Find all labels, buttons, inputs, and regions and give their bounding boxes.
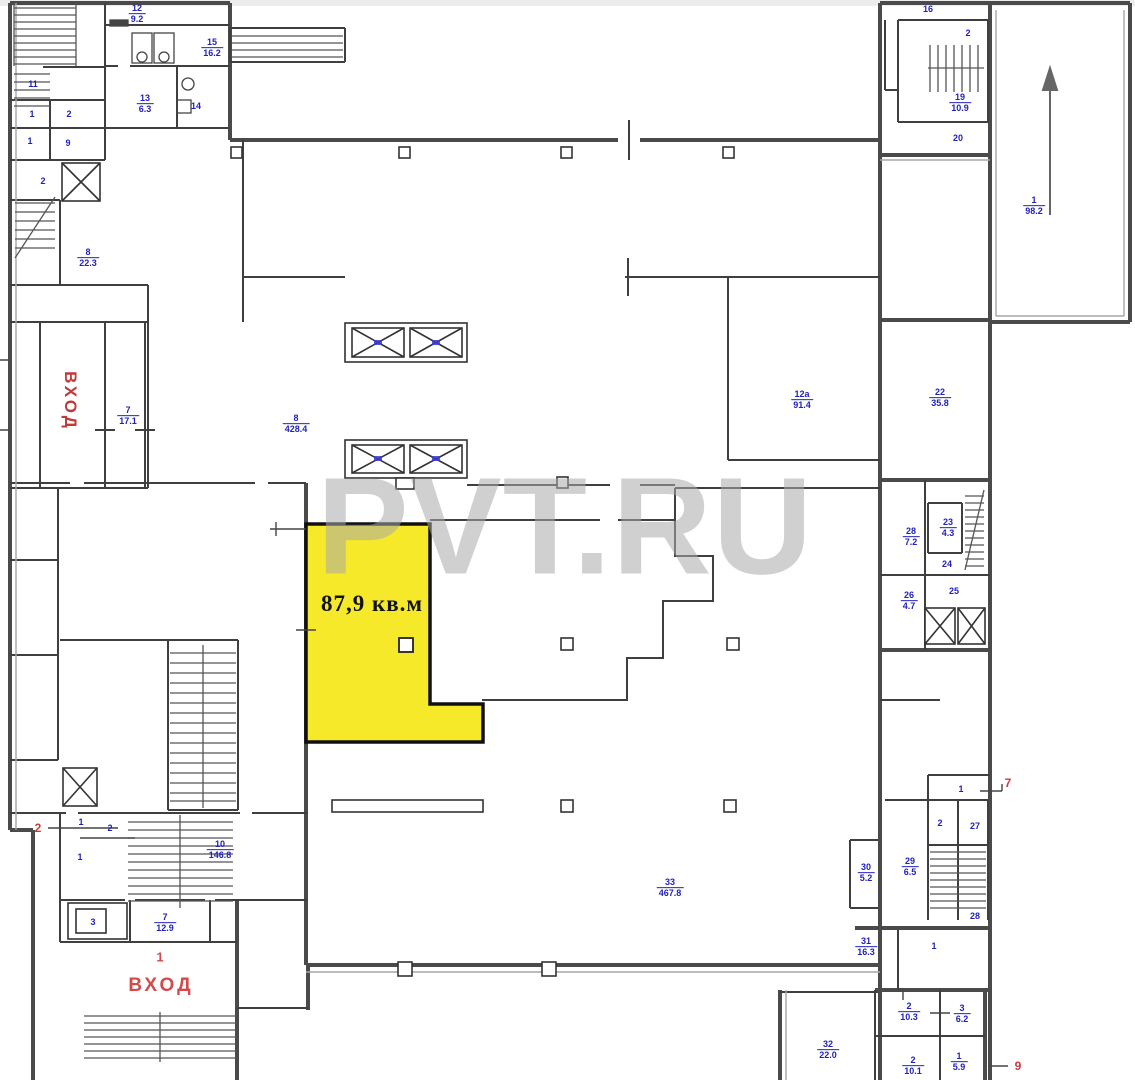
- room-label: 1: [75, 852, 84, 862]
- room-number: 28: [903, 526, 920, 536]
- room-label: 26 4.7: [901, 590, 918, 612]
- room-label: 13 6.3: [137, 93, 154, 115]
- room-area: 22.3: [77, 258, 99, 269]
- room-label: 7 17.1: [117, 405, 139, 427]
- room-area: 12.9: [154, 923, 176, 934]
- room-area: 9.2: [129, 14, 146, 25]
- room-area: 6.3: [137, 104, 154, 115]
- room-number: 2: [963, 28, 972, 38]
- room-number: 25: [947, 586, 961, 596]
- room-number: 8: [283, 413, 310, 423]
- room-label: 33 467.8: [657, 877, 684, 899]
- stairs: [14, 3, 986, 1062]
- room-label: 14: [189, 101, 203, 111]
- room-number: 10: [207, 839, 234, 849]
- room-label: 12а 91.4: [791, 389, 813, 411]
- room-area: 5.2: [858, 873, 875, 884]
- room-label: 2 10.1: [902, 1055, 924, 1077]
- room-number: 29: [902, 856, 919, 866]
- room-number: 11: [26, 79, 40, 89]
- room-number: 13: [137, 93, 154, 103]
- room-number: 1: [75, 852, 84, 862]
- room-area: 467.8: [657, 888, 684, 899]
- room-number: 3: [88, 917, 97, 927]
- room-label: 31 16.3: [855, 936, 877, 958]
- room-number: 1: [1023, 195, 1045, 205]
- room-number: 12: [129, 3, 146, 13]
- room-area: 5.9: [951, 1062, 968, 1073]
- room-number: 2: [898, 1001, 920, 1011]
- room-label: 19 10.9: [949, 92, 971, 114]
- room-number: 7: [154, 912, 176, 922]
- room-label: 1: [76, 817, 85, 827]
- room-number: 24: [940, 559, 954, 569]
- room-number: 16: [921, 4, 935, 14]
- room-label: 28: [968, 911, 982, 921]
- entrance-main-number: 1: [156, 950, 163, 965]
- room-label: 1: [956, 784, 965, 794]
- room-label: 2: [64, 109, 73, 119]
- direction-arrow: [1043, 68, 1057, 215]
- room-number: 2: [105, 823, 114, 833]
- red-position-number: 9: [1015, 1059, 1022, 1073]
- room-label: 20: [951, 133, 965, 143]
- room-number: 8: [77, 247, 99, 257]
- room-label: 2: [963, 28, 972, 38]
- room-area: 35.8: [929, 398, 951, 409]
- entrance-side-label: ВХОД: [60, 371, 80, 431]
- room-number: 9: [63, 138, 72, 148]
- room-number: 30: [858, 862, 875, 872]
- room-area: 10.9: [949, 103, 971, 114]
- room-number: 19: [949, 92, 971, 102]
- room-area: 10.3: [898, 1012, 920, 1023]
- room-label: 9: [63, 138, 72, 148]
- room-label: 2: [105, 823, 114, 833]
- room-label: 3: [88, 917, 97, 927]
- room-number: 1: [27, 109, 36, 119]
- room-number: 2: [38, 176, 47, 186]
- room-label: 8 22.3: [77, 247, 99, 269]
- room-number: 1: [956, 784, 965, 794]
- room-label: 32 22.0: [817, 1039, 839, 1061]
- room-number: 14: [189, 101, 203, 111]
- room-label: 11: [26, 79, 40, 89]
- room-label: 1 5.9: [951, 1051, 968, 1073]
- floor-plan: PVT.RU 87,9 кв.м ВХОД 1 ВХОД 11 1 2 1 9 …: [0, 0, 1135, 1080]
- room-number: 26: [901, 590, 918, 600]
- room-area: 16.2: [201, 48, 223, 59]
- room-number: 20: [951, 133, 965, 143]
- room-area: 428.4: [283, 424, 310, 435]
- room-label: 27: [968, 821, 982, 831]
- room-number: 31: [855, 936, 877, 946]
- room-label: 24: [940, 559, 954, 569]
- room-label: 10 146.8: [207, 839, 234, 861]
- room-label: 30 5.2: [858, 862, 875, 884]
- room-number: 15: [201, 37, 223, 47]
- room-label: 22 35.8: [929, 387, 951, 409]
- dimension-ticks: [0, 360, 1008, 1066]
- room-number: 1: [951, 1051, 968, 1061]
- room-area: 6.5: [902, 867, 919, 878]
- room-number: 1: [76, 817, 85, 827]
- room-area: 17.1: [117, 416, 139, 427]
- room-number: 32: [817, 1039, 839, 1049]
- unit-area-label: 87,9 кв.м: [321, 591, 423, 617]
- room-area: 4.7: [901, 601, 918, 612]
- room-number: 22: [929, 387, 951, 397]
- room-number: 12а: [791, 389, 813, 399]
- room-label: 29 6.5: [902, 856, 919, 878]
- room-number: 2: [902, 1055, 924, 1065]
- room-label: 7 12.9: [154, 912, 176, 934]
- room-number: 3: [954, 1003, 971, 1013]
- room-label: 15 16.2: [201, 37, 223, 59]
- room-number: 1: [929, 941, 938, 951]
- red-position-marker: 2: [35, 821, 42, 835]
- room-area: 10.1: [902, 1066, 924, 1077]
- room-label: 2: [935, 818, 944, 828]
- room-label: 23 4.3: [940, 517, 957, 539]
- room-label: 16: [921, 4, 935, 14]
- red-position-marker: 7: [1005, 776, 1012, 790]
- room-label: 1: [27, 109, 36, 119]
- room-number: 2: [935, 818, 944, 828]
- room-label: 12 9.2: [129, 3, 146, 25]
- red-position-number: 2: [35, 821, 42, 835]
- room-label: 3 6.2: [954, 1003, 971, 1025]
- room-area: 16.3: [855, 947, 877, 958]
- room-area: 7.2: [903, 537, 920, 548]
- room-number: 2: [64, 109, 73, 119]
- room-label: 28 7.2: [903, 526, 920, 548]
- room-number: 33: [657, 877, 684, 887]
- room-label: 1: [929, 941, 938, 951]
- room-number: 7: [117, 405, 139, 415]
- room-number: 23: [940, 517, 957, 527]
- red-position-number: 7: [1005, 776, 1012, 790]
- room-label: 8 428.4: [283, 413, 310, 435]
- room-area: 146.8: [207, 850, 234, 861]
- room-area: 98.2: [1023, 206, 1045, 217]
- room-label: 1 98.2: [1023, 195, 1045, 217]
- entrance-main-label: ВХОД: [128, 975, 193, 997]
- room-label: 2: [38, 176, 47, 186]
- red-position-marker: 9: [1015, 1059, 1022, 1073]
- room-number: 1: [25, 136, 34, 146]
- room-area: 6.2: [954, 1014, 971, 1025]
- room-number: 28: [968, 911, 982, 921]
- highlighted-unit: [306, 524, 483, 742]
- room-label: 2 10.3: [898, 1001, 920, 1023]
- room-number: 27: [968, 821, 982, 831]
- room-area: 22.0: [817, 1050, 839, 1061]
- room-label: 1: [25, 136, 34, 146]
- room-label: 25: [947, 586, 961, 596]
- room-area: 4.3: [940, 528, 957, 539]
- room-area: 91.4: [791, 400, 813, 411]
